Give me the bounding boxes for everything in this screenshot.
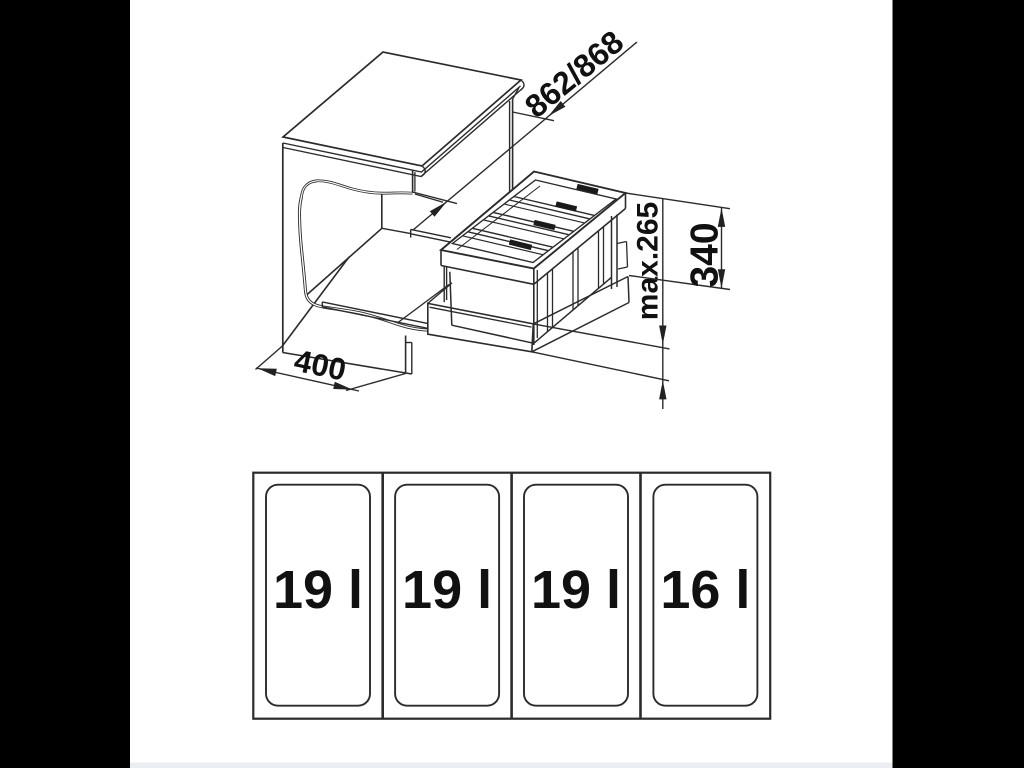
svg-text:19 l: 19 l [531,560,621,620]
svg-text:862/868: 862/868 [518,23,630,124]
svg-text:19 l: 19 l [273,560,363,620]
svg-text:16 l: 16 l [660,560,750,620]
svg-text:400: 400 [291,343,349,388]
svg-text:19 l: 19 l [402,560,492,620]
svg-text:340: 340 [684,222,727,287]
svg-text:max.265: max.265 [632,202,665,320]
